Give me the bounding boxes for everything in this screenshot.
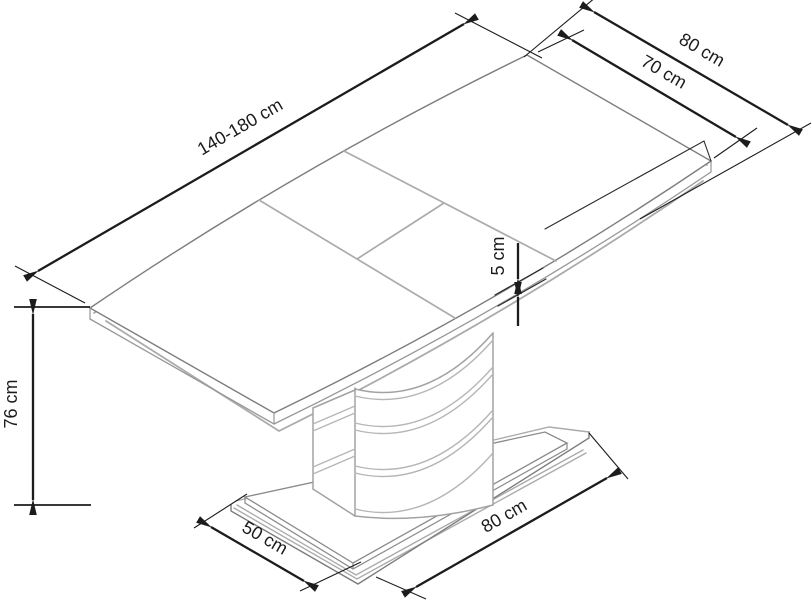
dim-label-base-depth: 50 cm bbox=[239, 517, 291, 559]
dim-end-width-arrow bbox=[594, 12, 788, 125]
dim-label-thickness: 5 cm bbox=[488, 236, 508, 275]
dim-label-top-width: 70 cm bbox=[638, 51, 690, 93]
table-drawing-svg: 140-180 cm 80 cm 70 cm 5 cm 76 cm 50 cm … bbox=[0, 0, 812, 600]
dim-label-height: 76 cm bbox=[1, 379, 21, 428]
dimension-diagram: 140-180 cm 80 cm 70 cm 5 cm 76 cm 50 cm … bbox=[0, 0, 812, 600]
dim-label-length: 140-180 cm bbox=[194, 94, 286, 159]
tabletop bbox=[90, 55, 711, 431]
